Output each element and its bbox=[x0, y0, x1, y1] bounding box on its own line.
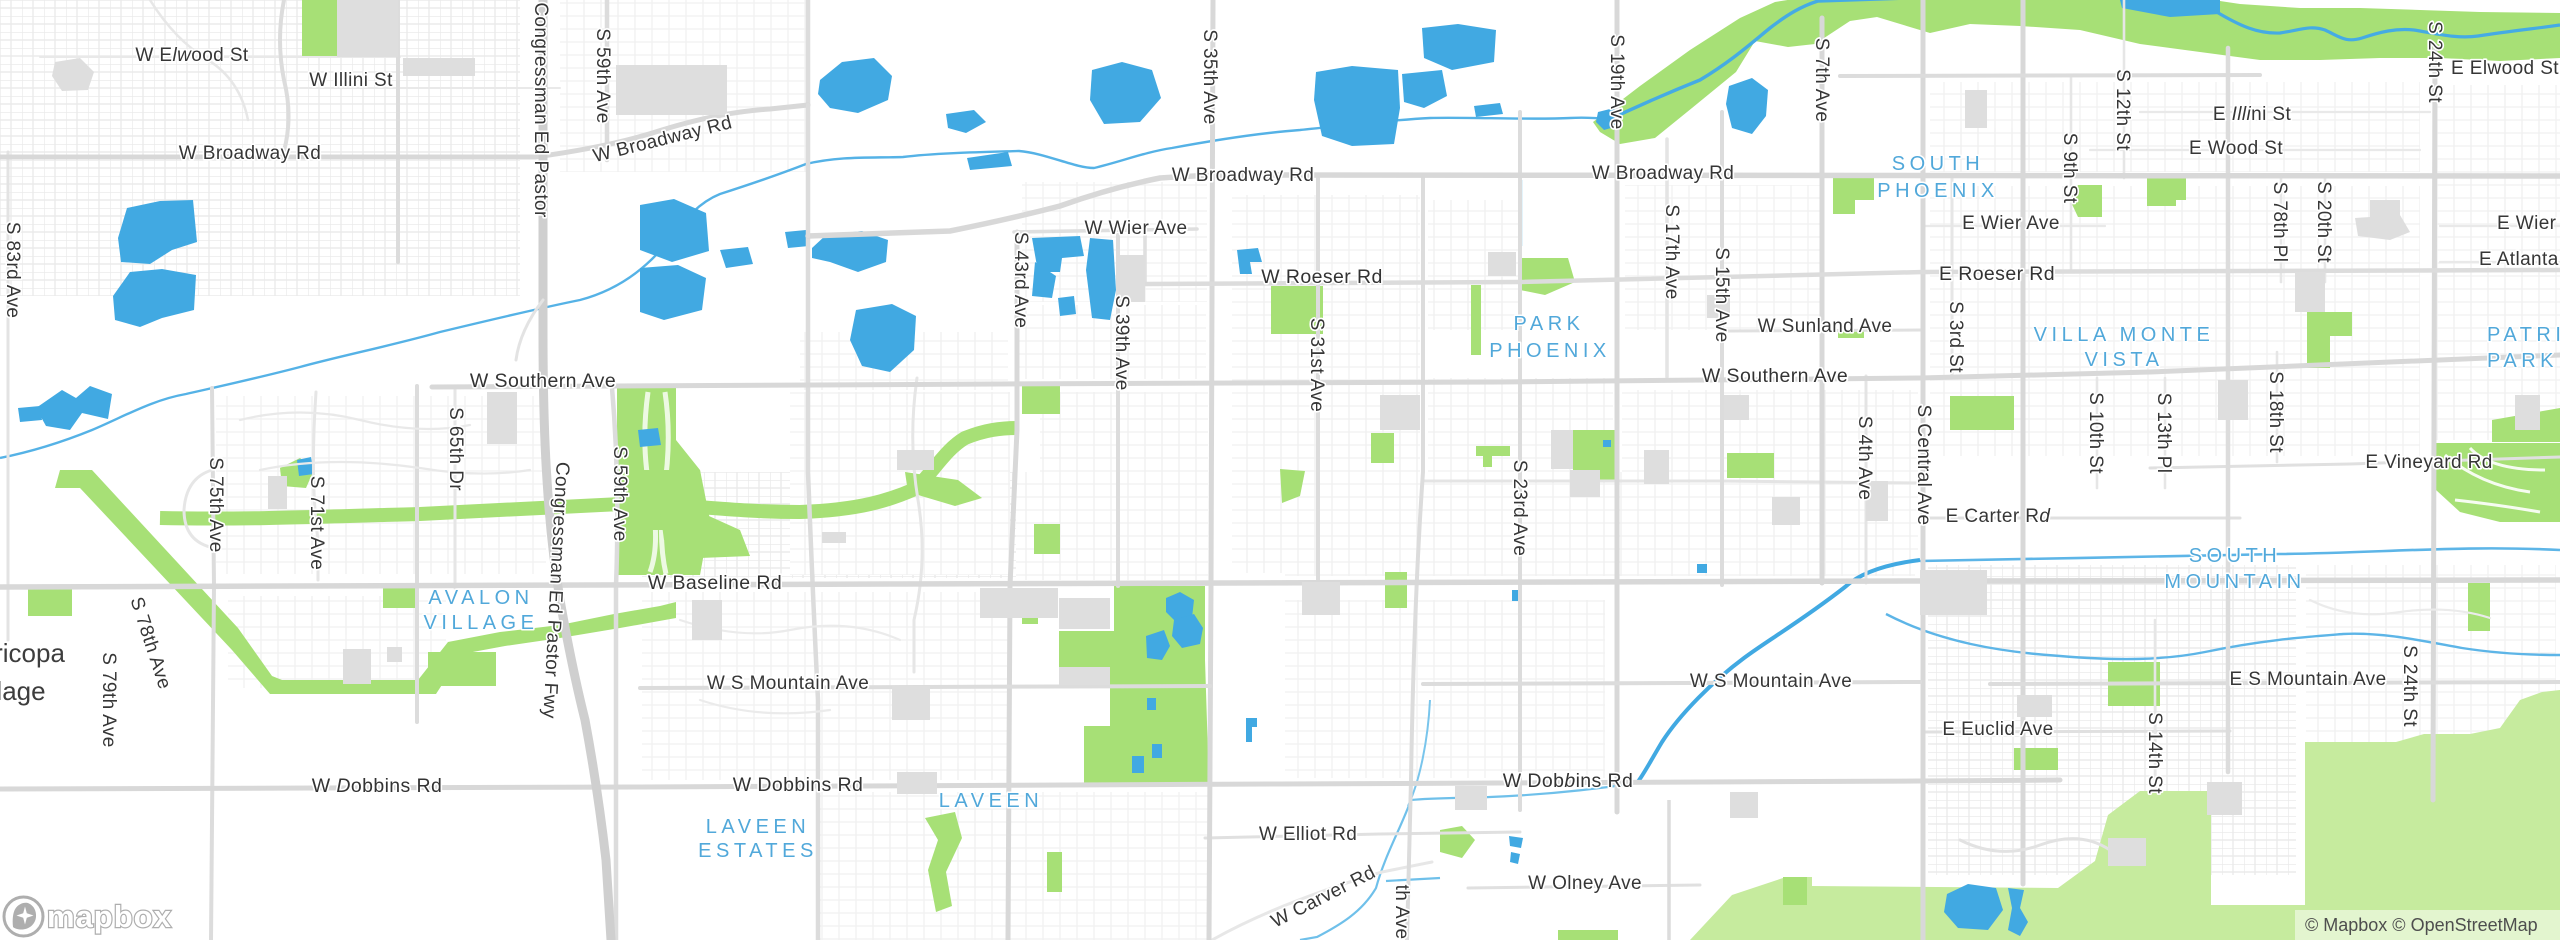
svg-text:E Illini St: E Illini St bbox=[2213, 104, 2292, 125]
svg-text:W Illini St: W Illini St bbox=[309, 70, 393, 91]
svg-text:PHOENIX: PHOENIX bbox=[1877, 180, 1999, 202]
svg-text:W Broadway Rd: W Broadway Rd bbox=[179, 143, 321, 164]
svg-text:W S Mountain Ave: W S Mountain Ave bbox=[1690, 671, 1852, 692]
svg-text:W S Mountain Ave: W S Mountain Ave bbox=[707, 673, 869, 694]
svg-text:LAVEEN: LAVEEN bbox=[939, 790, 1043, 812]
svg-text:W Elliot Rd: W Elliot Rd bbox=[1259, 824, 1357, 845]
svg-text:S 13th Pl: S 13th Pl bbox=[2153, 393, 2174, 474]
svg-text:S 19th Ave: S 19th Ave bbox=[1606, 34, 1627, 130]
svg-text:W Dobbins Rd: W Dobbins Rd bbox=[312, 775, 443, 797]
svg-text:S 71st Ave: S 71st Ave bbox=[306, 476, 327, 571]
svg-text:AVALON: AVALON bbox=[428, 587, 533, 609]
svg-text:S 59th Ave: S 59th Ave bbox=[609, 446, 630, 542]
svg-text:E Carter Rd: E Carter Rd bbox=[1946, 506, 2052, 527]
svg-text:S 35th Ave: S 35th Ave bbox=[1199, 29, 1220, 125]
svg-text:S 23rd Ave: S 23rd Ave bbox=[1509, 460, 1530, 557]
svg-text:W Roeser Rd: W Roeser Rd bbox=[1261, 266, 1382, 288]
svg-text:S 78th Pl: S 78th Pl bbox=[2269, 182, 2290, 263]
svg-text:VILLA MONTE: VILLA MONTE bbox=[2034, 324, 2215, 346]
svg-text:VILLAGE: VILLAGE bbox=[424, 612, 539, 634]
svg-text:PARK: PARK bbox=[1514, 313, 1585, 335]
svg-text:LAVEEN: LAVEEN bbox=[706, 816, 810, 838]
svg-text:W Wier Ave: W Wier Ave bbox=[1085, 218, 1188, 239]
svg-text:mapbox: mapbox bbox=[47, 899, 172, 934]
svg-text:E Atlanta A: E Atlanta A bbox=[2479, 249, 2560, 270]
svg-text:E Elwood St: E Elwood St bbox=[2451, 58, 2559, 79]
svg-text:S Central Ave: S Central Ave bbox=[1913, 404, 1934, 525]
svg-text:S 4th Ave: S 4th Ave bbox=[1854, 416, 1875, 501]
svg-text:S 65th Dr: S 65th Dr bbox=[445, 407, 466, 491]
svg-text:W Baseline Rd: W Baseline Rd bbox=[648, 572, 782, 594]
svg-text:Congressman Ed Pastor: Congressman Ed Pastor bbox=[530, 2, 551, 218]
svg-text:S 20th St: S 20th St bbox=[2313, 181, 2334, 263]
svg-text:E Wier Ave: E Wier Ave bbox=[1962, 213, 2060, 234]
svg-text:S 39th Ave: S 39th Ave bbox=[1111, 295, 1132, 391]
svg-text:Maricopa: Maricopa bbox=[0, 638, 65, 668]
svg-text:W Southern Ave: W Southern Ave bbox=[470, 370, 616, 392]
svg-text:S 14th St: S 14th St bbox=[2144, 712, 2165, 794]
svg-text:S 31st Ave: S 31st Ave bbox=[1306, 318, 1327, 413]
svg-text:S 75th Ave: S 75th Ave bbox=[205, 457, 226, 553]
svg-text:SOUTH: SOUTH bbox=[1892, 153, 1985, 175]
svg-text:S 83rd Ave: S 83rd Ave bbox=[2, 222, 23, 319]
svg-text:MOUNTAIN: MOUNTAIN bbox=[2164, 571, 2305, 593]
svg-text:W Southern Ave: W Southern Ave bbox=[1702, 365, 1848, 387]
svg-text:S 24th St: S 24th St bbox=[2424, 21, 2445, 103]
svg-text:S 3rd St: S 3rd St bbox=[1945, 301, 1966, 373]
svg-text:th Ave: th Ave bbox=[1391, 885, 1412, 940]
svg-text:PHOENIX: PHOENIX bbox=[1489, 340, 1611, 362]
svg-text:SOUTH: SOUTH bbox=[2189, 545, 2282, 567]
svg-text:W Broadway Rd: W Broadway Rd bbox=[1592, 163, 1734, 184]
svg-text:W Dobbins Rd: W Dobbins Rd bbox=[1503, 770, 1634, 792]
svg-text:W Broadway Rd: W Broadway Rd bbox=[1172, 165, 1314, 186]
svg-text:W Dobbins Rd: W Dobbins Rd bbox=[733, 774, 864, 796]
svg-text:S 79th Ave: S 79th Ave bbox=[98, 652, 119, 748]
svg-text:PATRIOT: PATRIOT bbox=[2487, 324, 2560, 346]
svg-text:S 9th St: S 9th St bbox=[2059, 133, 2080, 204]
svg-text:E Roeser Rd: E Roeser Rd bbox=[1939, 263, 2055, 285]
svg-text:S 18th St: S 18th St bbox=[2265, 371, 2286, 453]
svg-text:E Vineyard Rd: E Vineyard Rd bbox=[2365, 452, 2492, 473]
svg-text:ESTATES: ESTATES bbox=[698, 840, 818, 862]
svg-text:W Olney Ave: W Olney Ave bbox=[1528, 873, 1642, 894]
svg-text:S 17th Ave: S 17th Ave bbox=[1661, 204, 1682, 300]
svg-text:S 59th Ave: S 59th Ave bbox=[592, 28, 613, 124]
svg-text:S 12th St: S 12th St bbox=[2112, 69, 2133, 151]
svg-text:E Euclid Ave: E Euclid Ave bbox=[1942, 719, 2053, 740]
svg-text:Village: Village bbox=[0, 676, 46, 706]
svg-text:S 15th Ave: S 15th Ave bbox=[1711, 247, 1732, 343]
svg-text:© Mapbox © OpenStreetMap: © Mapbox © OpenStreetMap bbox=[2305, 915, 2538, 935]
svg-text:W Elwood St: W Elwood St bbox=[135, 45, 248, 66]
svg-text:W Sunland Ave: W Sunland Ave bbox=[1758, 316, 1893, 337]
svg-text:S 43rd Ave: S 43rd Ave bbox=[1010, 232, 1031, 329]
svg-text:S 10th St: S 10th St bbox=[2085, 392, 2106, 474]
svg-text:S 7th Ave: S 7th Ave bbox=[1811, 38, 1832, 123]
svg-text:E Wood St: E Wood St bbox=[2189, 138, 2283, 159]
svg-text:E S Mountain Ave: E S Mountain Ave bbox=[2229, 669, 2386, 690]
svg-text:PARK: PARK bbox=[2487, 350, 2558, 372]
svg-text:S 24th St: S 24th St bbox=[2399, 645, 2420, 727]
svg-text:VISTA: VISTA bbox=[2085, 349, 2164, 371]
svg-text:E Wier A: E Wier A bbox=[2497, 213, 2560, 234]
